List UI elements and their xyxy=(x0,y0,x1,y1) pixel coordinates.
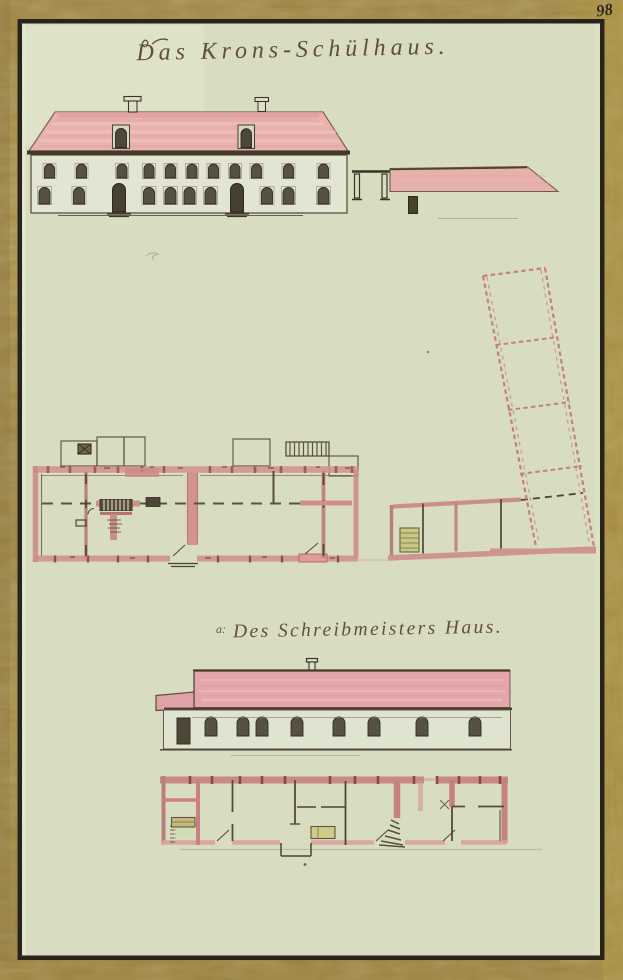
svg-text:98: 98 xyxy=(595,0,614,20)
svg-text:a:: a: xyxy=(216,622,226,636)
